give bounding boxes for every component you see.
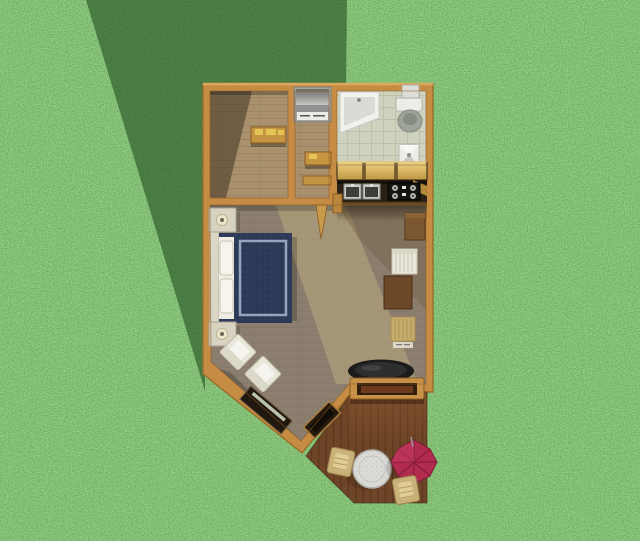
tub-drain xyxy=(357,98,361,102)
nightstand-shadow xyxy=(236,212,240,232)
floor-plan-rendering xyxy=(0,0,640,541)
toilet-bowl-inner xyxy=(403,113,417,125)
label-dash xyxy=(313,115,325,117)
round-patio-table xyxy=(353,450,391,488)
stove-knob xyxy=(402,186,406,189)
shelf-item xyxy=(309,154,317,159)
range-stove xyxy=(388,183,420,200)
bench-plank xyxy=(361,386,413,393)
fridge-top xyxy=(405,213,425,218)
burner-center xyxy=(412,195,414,197)
lamp-top xyxy=(220,332,224,336)
burner-center xyxy=(412,187,414,189)
counter-end-post xyxy=(333,194,342,213)
stove-top xyxy=(355,362,407,378)
pillow xyxy=(220,279,233,313)
tag-dash xyxy=(396,344,402,345)
sink-basin xyxy=(346,187,359,197)
entry-wall-shade xyxy=(210,91,288,95)
sink-drain xyxy=(407,153,411,157)
dining-chair-white xyxy=(392,249,417,274)
wicker-chair-1 xyxy=(327,447,356,477)
shelf-shadow xyxy=(305,165,331,169)
lamp-top xyxy=(220,218,224,222)
dining-chair-gold xyxy=(391,317,415,348)
tag-dash xyxy=(404,344,410,345)
wall-shelf-lower xyxy=(303,176,331,185)
nightstand-north xyxy=(209,208,240,232)
washer-controls xyxy=(296,105,329,112)
stove-knob xyxy=(402,193,406,196)
headboard xyxy=(210,231,219,325)
refrigerator xyxy=(405,213,425,240)
stove-highlight xyxy=(362,365,382,371)
bathroom xyxy=(337,85,426,165)
faucet xyxy=(370,184,373,187)
washer-dryer xyxy=(294,87,331,122)
toilet-tank xyxy=(396,98,422,111)
sink-basin xyxy=(365,187,378,197)
shelf-item xyxy=(255,129,263,135)
shelf-item xyxy=(266,129,276,135)
entry-room xyxy=(210,91,288,198)
double-bed xyxy=(210,231,297,325)
faucet xyxy=(351,184,354,187)
toilet xyxy=(396,98,422,132)
chair-rail xyxy=(392,249,417,254)
burner-center xyxy=(394,187,396,189)
wicker-chair-2 xyxy=(392,475,420,505)
wall-shelf-upper xyxy=(305,152,331,165)
burner-center xyxy=(394,195,396,197)
bench-shadow xyxy=(350,399,424,404)
storage-bench xyxy=(350,378,424,399)
floor-plan-screenshot xyxy=(0,0,640,541)
pillow xyxy=(220,241,233,275)
dining-table xyxy=(384,276,412,309)
shelf-shadow xyxy=(251,143,286,147)
label-dash xyxy=(300,115,310,117)
bed-shadow xyxy=(292,237,297,321)
hallway xyxy=(294,87,331,198)
shelf-item xyxy=(278,130,284,135)
